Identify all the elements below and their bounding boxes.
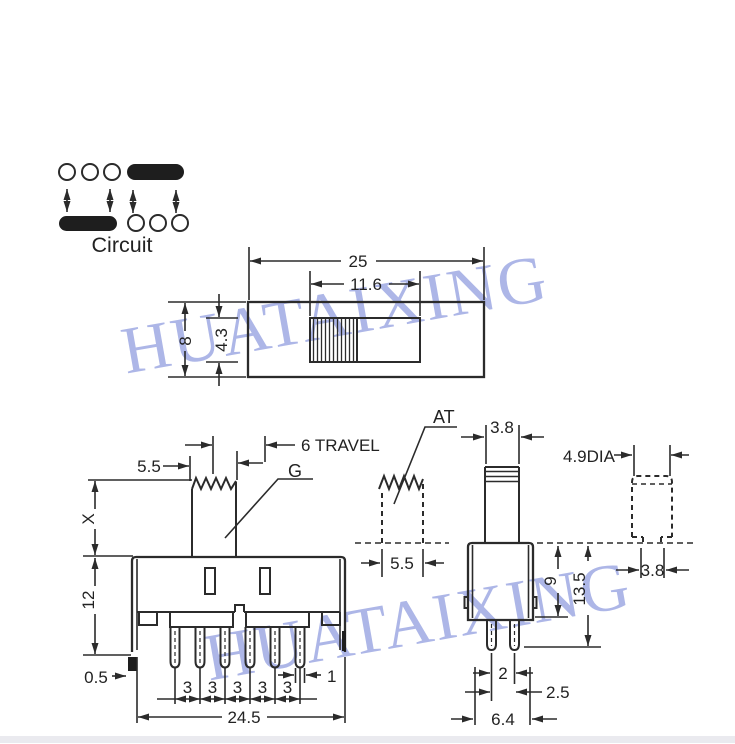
terminal-pins (171, 627, 305, 668)
dim-top-height: 8 (176, 336, 195, 345)
body-slot (205, 568, 215, 594)
dim-side-depth: 6.4 (491, 710, 515, 729)
dim-side-pin-offset: 2.5 (546, 683, 570, 702)
solder-tab (342, 631, 346, 651)
dim-side-knob-width: 3.8 (490, 418, 514, 437)
contact-bar (127, 164, 184, 180)
dim-body-height: 12 (79, 591, 98, 610)
cap-outline (632, 476, 672, 537)
mount-ear (322, 612, 340, 625)
mount-ear (139, 612, 157, 625)
terminal-block (170, 612, 233, 627)
contact-dot (104, 164, 120, 180)
contact-dot (82, 164, 98, 180)
label-actuator: AT (433, 407, 455, 427)
dim-knob-height: X (79, 513, 98, 524)
contact-dot (150, 215, 166, 231)
terminal-block (246, 612, 309, 627)
front-view: G X 12 0.5 5.5 6 TRAVEL 1 (79, 436, 380, 727)
dim-side-pin-gap: 2 (498, 664, 507, 683)
switch-dimension-drawing: Circuit 25 11.6 8 4.3 (0, 0, 735, 744)
label-cap-diameter: 4.9DIA (563, 447, 616, 466)
dim-top-width: 25 (349, 252, 368, 271)
contact-dot (59, 164, 75, 180)
dim-side-body-height: 9 (541, 576, 560, 585)
switch-body-side-outline (468, 543, 533, 620)
actuator-leader-line (394, 427, 457, 504)
label-knob-ref: G (288, 461, 302, 481)
pin-pitch-dimensions: 3 3 3 3 3 (157, 668, 317, 704)
technical-drawing-page: { "watermark": { "text": "HUATAIXING", "… (0, 0, 735, 744)
dim-pin-pitch: 3 (258, 678, 267, 697)
dim-body-width: 24.5 (227, 708, 260, 727)
body-slot (260, 568, 270, 594)
dim-actuator-width: 5.5 (390, 554, 414, 573)
dim-top-slot-height: 4.3 (212, 328, 231, 352)
circuit-label: Circuit (92, 233, 153, 257)
dim-side-total-height: 13.5 (570, 572, 589, 605)
dim-pin-pitch: 3 (183, 678, 192, 697)
contact-dot (128, 215, 144, 231)
contact-bar (59, 216, 117, 231)
base-notch (235, 605, 244, 612)
cap-detail: 4.9DIA 3.8 (563, 445, 689, 580)
knob-serration (192, 478, 236, 489)
contact-dot (172, 215, 188, 231)
top-view: 25 11.6 8 4.3 (168, 247, 484, 386)
dim-travel: 6 TRAVEL (301, 436, 380, 455)
slider-knob-hatch (314, 318, 358, 362)
actuator-detail: AT 5.5 (355, 407, 457, 577)
dim-knob-width: 5.5 (137, 457, 161, 476)
circuit-symbol: Circuit (59, 164, 188, 257)
solder-tab (128, 657, 137, 671)
knob-leader-line (225, 479, 313, 538)
slider-slot (310, 318, 420, 362)
dim-pin-width: 1 (327, 667, 336, 686)
dim-pin-pitch: 3 (233, 678, 242, 697)
dim-cap-base-width: 3.8 (641, 561, 665, 580)
dim-pin-pitch: 3 (208, 678, 217, 697)
dim-top-slot-width: 11.6 (350, 275, 382, 294)
dim-tab-thickness: 0.5 (84, 668, 108, 687)
switch-body-top-outline (248, 302, 484, 377)
dim-pin-pitch: 3 (283, 678, 292, 697)
